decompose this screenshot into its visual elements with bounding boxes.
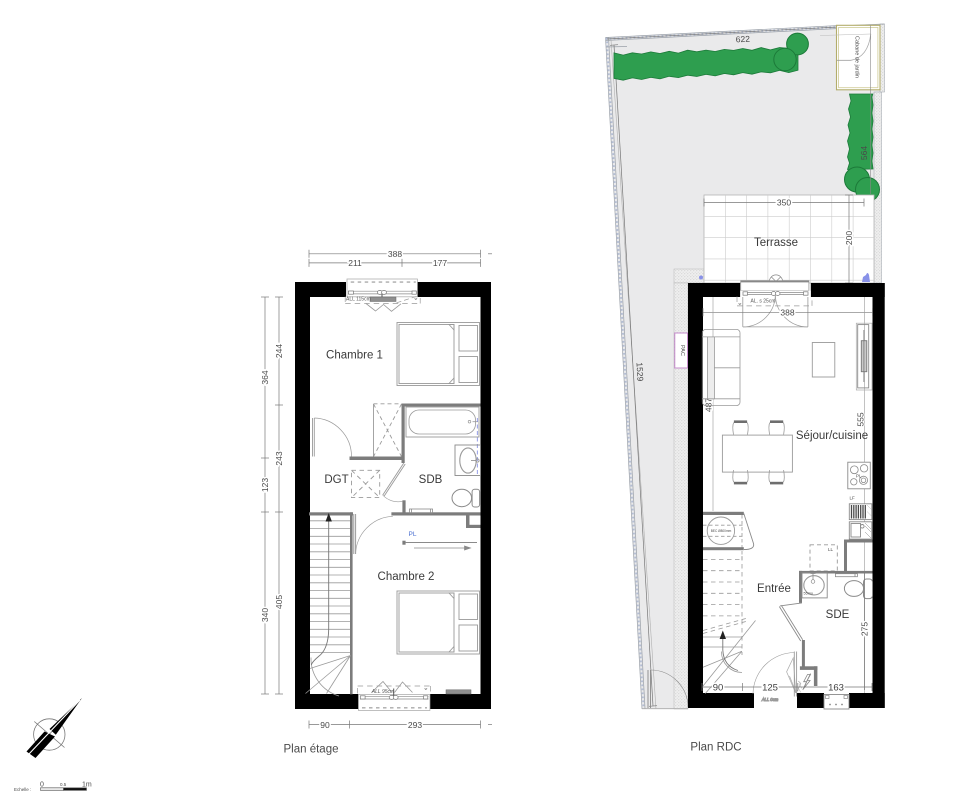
svg-text:1529: 1529 xyxy=(634,362,645,382)
svg-text:90: 90 xyxy=(320,720,330,730)
svg-text:SDE: SDE xyxy=(826,609,850,621)
svg-text:622: 622 xyxy=(735,34,750,45)
svg-text:0.5: 0.5 xyxy=(60,782,67,787)
svg-text:PL: PL xyxy=(409,531,417,538)
svg-text:Séjour/cuisine: Séjour/cuisine xyxy=(796,430,868,442)
svg-text:PAC: PAC xyxy=(679,345,685,356)
svg-text:LL: LL xyxy=(828,547,834,552)
svg-text:163: 163 xyxy=(828,683,844,694)
svg-text:350: 350 xyxy=(777,198,791,208)
svg-text:PL: PL xyxy=(856,474,862,479)
svg-text:Entrée: Entrée xyxy=(757,583,791,595)
svg-text:123: 123 xyxy=(260,478,270,492)
svg-text:364: 364 xyxy=(260,370,270,384)
svg-text:1m: 1m xyxy=(82,782,92,789)
svg-text:177: 177 xyxy=(433,258,447,268)
svg-text:244: 244 xyxy=(274,344,284,358)
svg-text:243: 243 xyxy=(274,451,284,465)
svg-text:388: 388 xyxy=(388,249,402,259)
svg-text:DGT: DGT xyxy=(324,474,348,486)
svg-text:555: 555 xyxy=(856,412,866,426)
svg-text:Echelle :: Echelle : xyxy=(14,787,31,792)
svg-text:SDB: SDB xyxy=(419,474,443,486)
svg-text:AL. s 25cm: AL. s 25cm xyxy=(750,299,775,305)
svg-text:211: 211 xyxy=(348,258,362,268)
svg-text:200: 200 xyxy=(844,231,854,245)
svg-text:487: 487 xyxy=(704,398,714,412)
svg-text:Cabane de jardin: Cabane de jardin xyxy=(854,36,860,78)
svg-text:LF: LF xyxy=(850,496,856,501)
svg-text:Plan étage: Plan étage xyxy=(284,744,339,756)
svg-text:90: 90 xyxy=(713,683,724,694)
svg-text:564: 564 xyxy=(859,146,869,160)
svg-text:Chambre 1: Chambre 1 xyxy=(326,350,383,362)
svg-text:Terrasse: Terrasse xyxy=(754,237,798,249)
svg-text:125: 125 xyxy=(762,683,778,694)
svg-text:ALL 115cm: ALL 115cm xyxy=(346,297,371,303)
svg-text:0: 0 xyxy=(40,782,44,789)
svg-text:Plan RDC: Plan RDC xyxy=(690,742,741,754)
svg-text:ALL 95cm: ALL 95cm xyxy=(371,689,394,695)
svg-text:405: 405 xyxy=(274,595,284,609)
svg-text:ALL 0cm: ALL 0cm xyxy=(761,697,779,702)
svg-text:Chambre 2: Chambre 2 xyxy=(378,571,435,583)
svg-text:55mo: 55mo xyxy=(804,592,814,596)
svg-text:275: 275 xyxy=(860,622,870,636)
svg-text:293: 293 xyxy=(408,720,422,730)
svg-text:388: 388 xyxy=(780,307,794,317)
svg-text:340: 340 xyxy=(260,608,270,622)
svg-text:BEC Ø800mm: BEC Ø800mm xyxy=(711,529,732,533)
